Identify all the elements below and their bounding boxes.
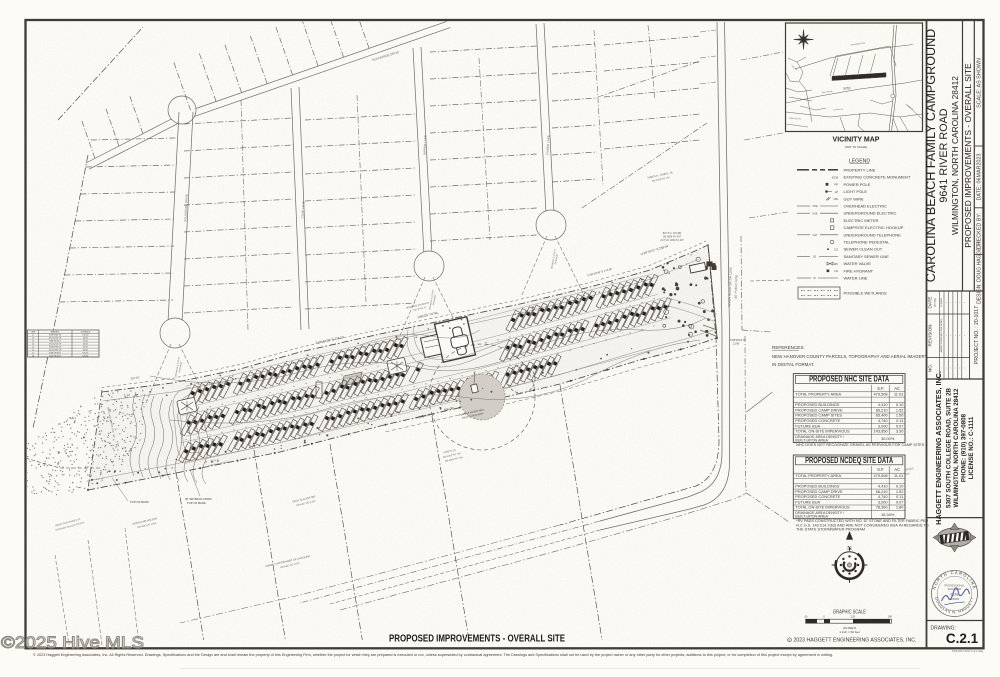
svg-text:© 2023 Haggett Engineering Ass: © 2023 Haggett Engineering Associates, I…: [33, 653, 833, 657]
svg-text:PROPOSED IMPROVEMENTS - OVERAL: PROPOSED IMPROVEMENTS - OVERALL SITE: [389, 634, 565, 645]
svg-text:©2025 Hive MLS: ©2025 Hive MLS: [1, 634, 144, 652]
